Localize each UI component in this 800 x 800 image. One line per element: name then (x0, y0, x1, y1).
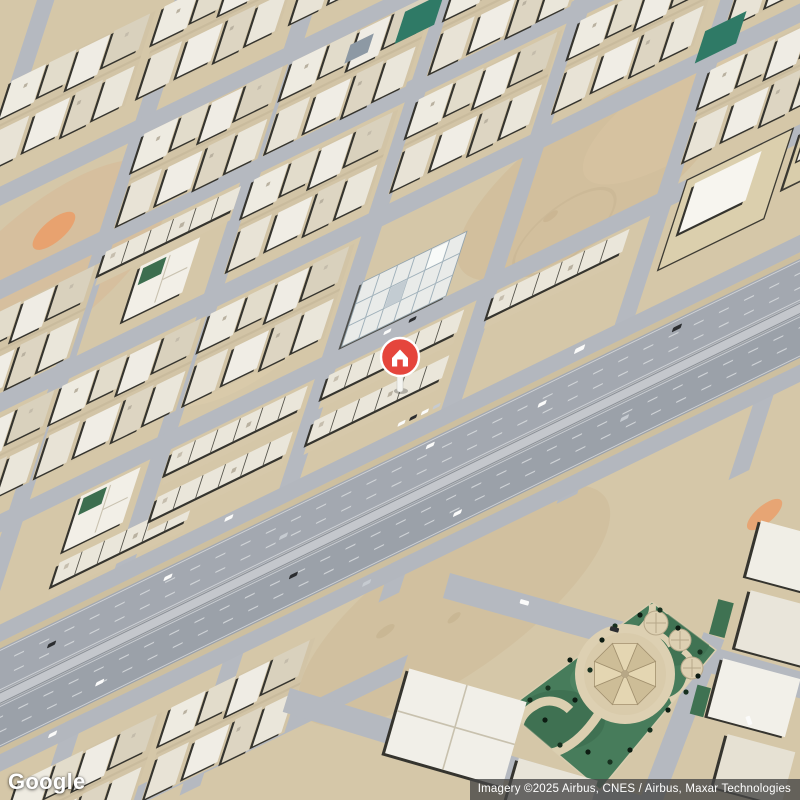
star-plaza (575, 624, 675, 724)
imagery-attribution: Imagery ©2025 Airbus, CNES / Airbus, Max… (470, 779, 800, 800)
satellite-imagery[interactable] (0, 0, 800, 800)
map-viewport[interactable]: Google Imagery ©2025 Airbus, CNES / Airb… (0, 0, 800, 800)
google-logo[interactable]: Google (8, 769, 86, 795)
